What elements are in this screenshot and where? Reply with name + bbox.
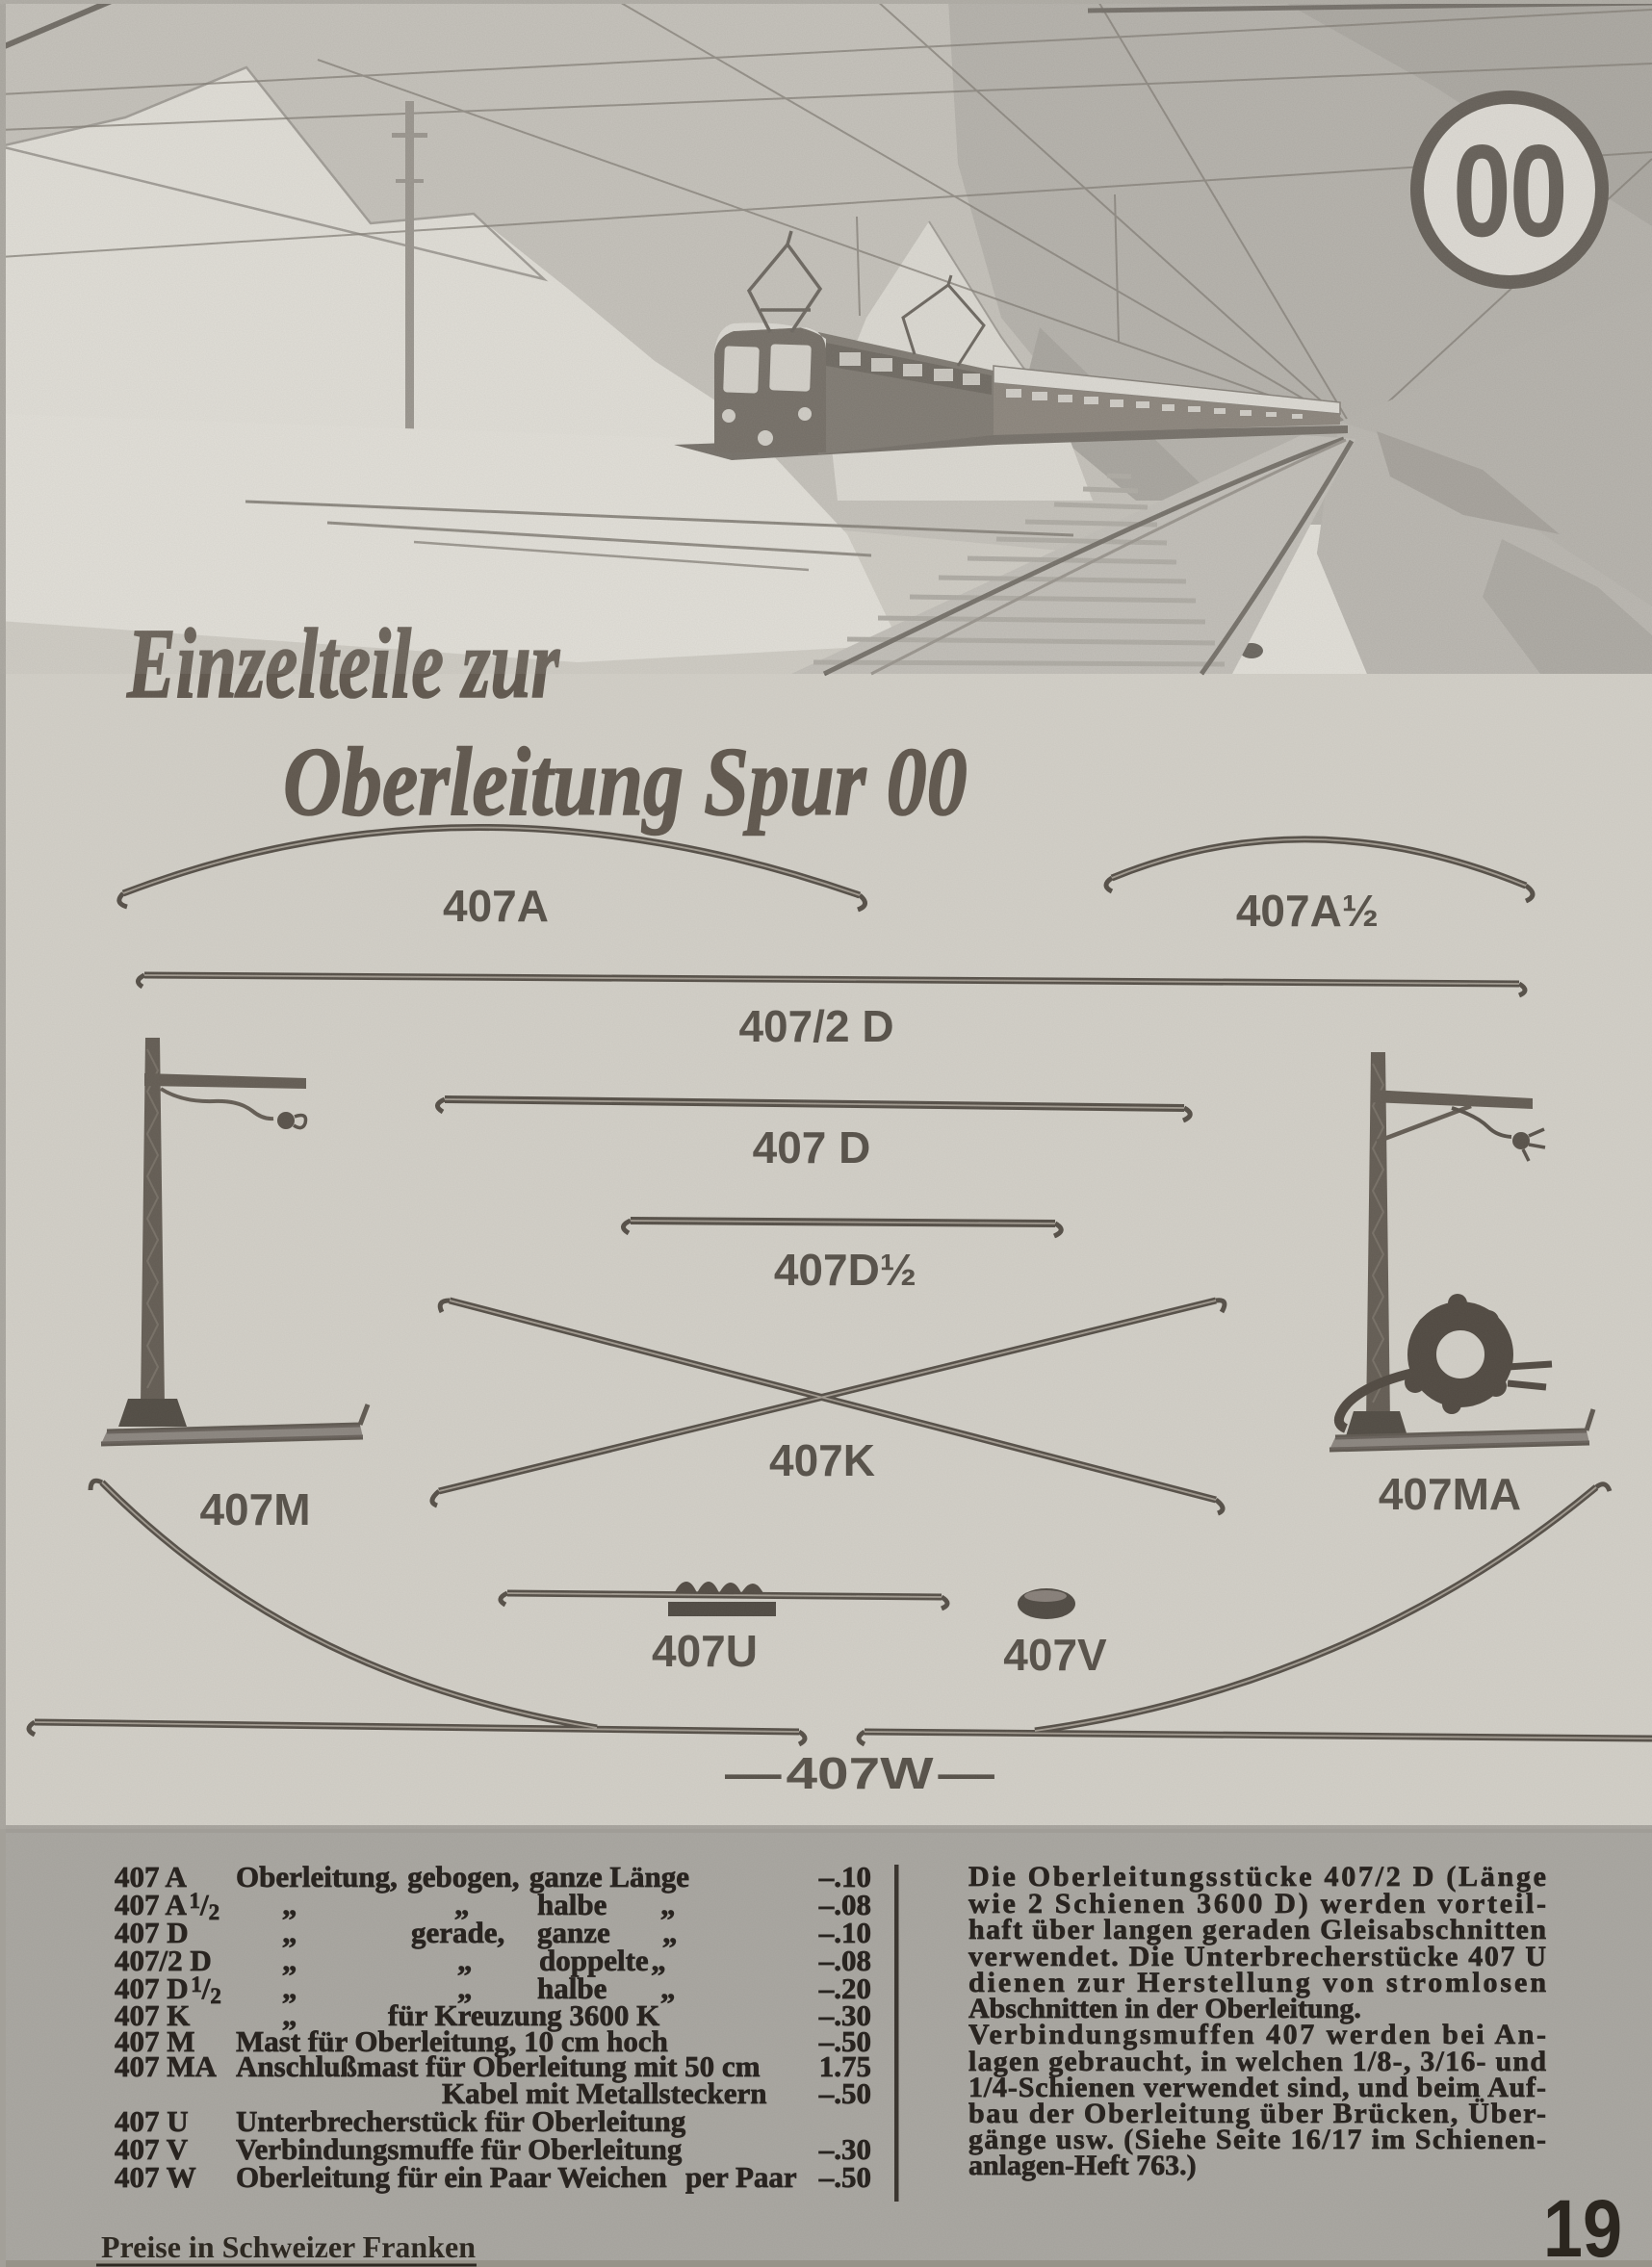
svg-text:–.50: –.50 xyxy=(818,2076,871,2110)
svg-text:19: 19 xyxy=(1543,2183,1622,2267)
svg-text:407 W: 407 W xyxy=(115,2160,196,2194)
svg-text:anlagen-Heft 763.): anlagen-Heft 763.) xyxy=(968,2150,1197,2181)
svg-text:„: „ xyxy=(660,1971,676,2005)
svg-text:407 MA: 407 MA xyxy=(115,2049,218,2083)
svg-text:per Paar: per Paar xyxy=(685,2160,797,2194)
svg-text:Preise in Schweizer Franken: Preise in Schweizer Franken xyxy=(101,2229,476,2264)
svg-text:Oberleitung für ein Paar Weich: Oberleitung für ein Paar Weichen xyxy=(236,2160,667,2194)
svg-text:–.50: –.50 xyxy=(818,2160,871,2194)
